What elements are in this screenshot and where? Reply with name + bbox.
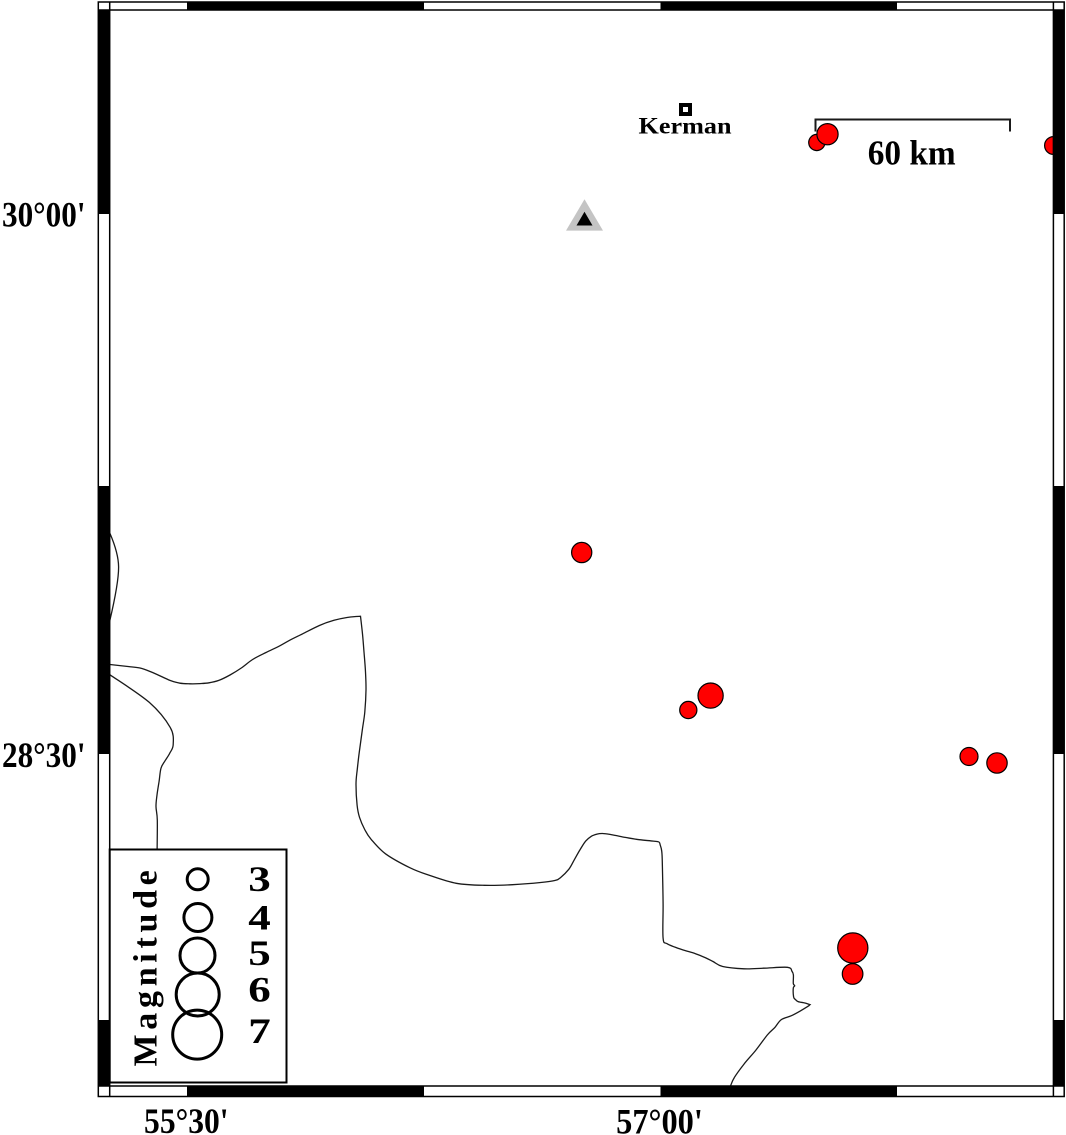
svg-text:Magnitude: Magnitude <box>128 866 165 1067</box>
svg-text:Kerman: Kerman <box>639 114 732 139</box>
svg-text:60 km: 60 km <box>868 134 956 173</box>
svg-text:6: 6 <box>248 970 271 1010</box>
svg-text:30°00': 30°00' <box>2 195 86 235</box>
svg-text:3: 3 <box>248 859 271 899</box>
svg-text:4: 4 <box>248 897 271 937</box>
svg-text:28°30': 28°30' <box>2 735 86 775</box>
svg-text:7: 7 <box>248 1011 271 1051</box>
svg-text:55°30': 55°30' <box>144 1101 229 1135</box>
svg-text:57°00': 57°00' <box>616 1101 703 1135</box>
svg-text:5: 5 <box>248 933 271 973</box>
